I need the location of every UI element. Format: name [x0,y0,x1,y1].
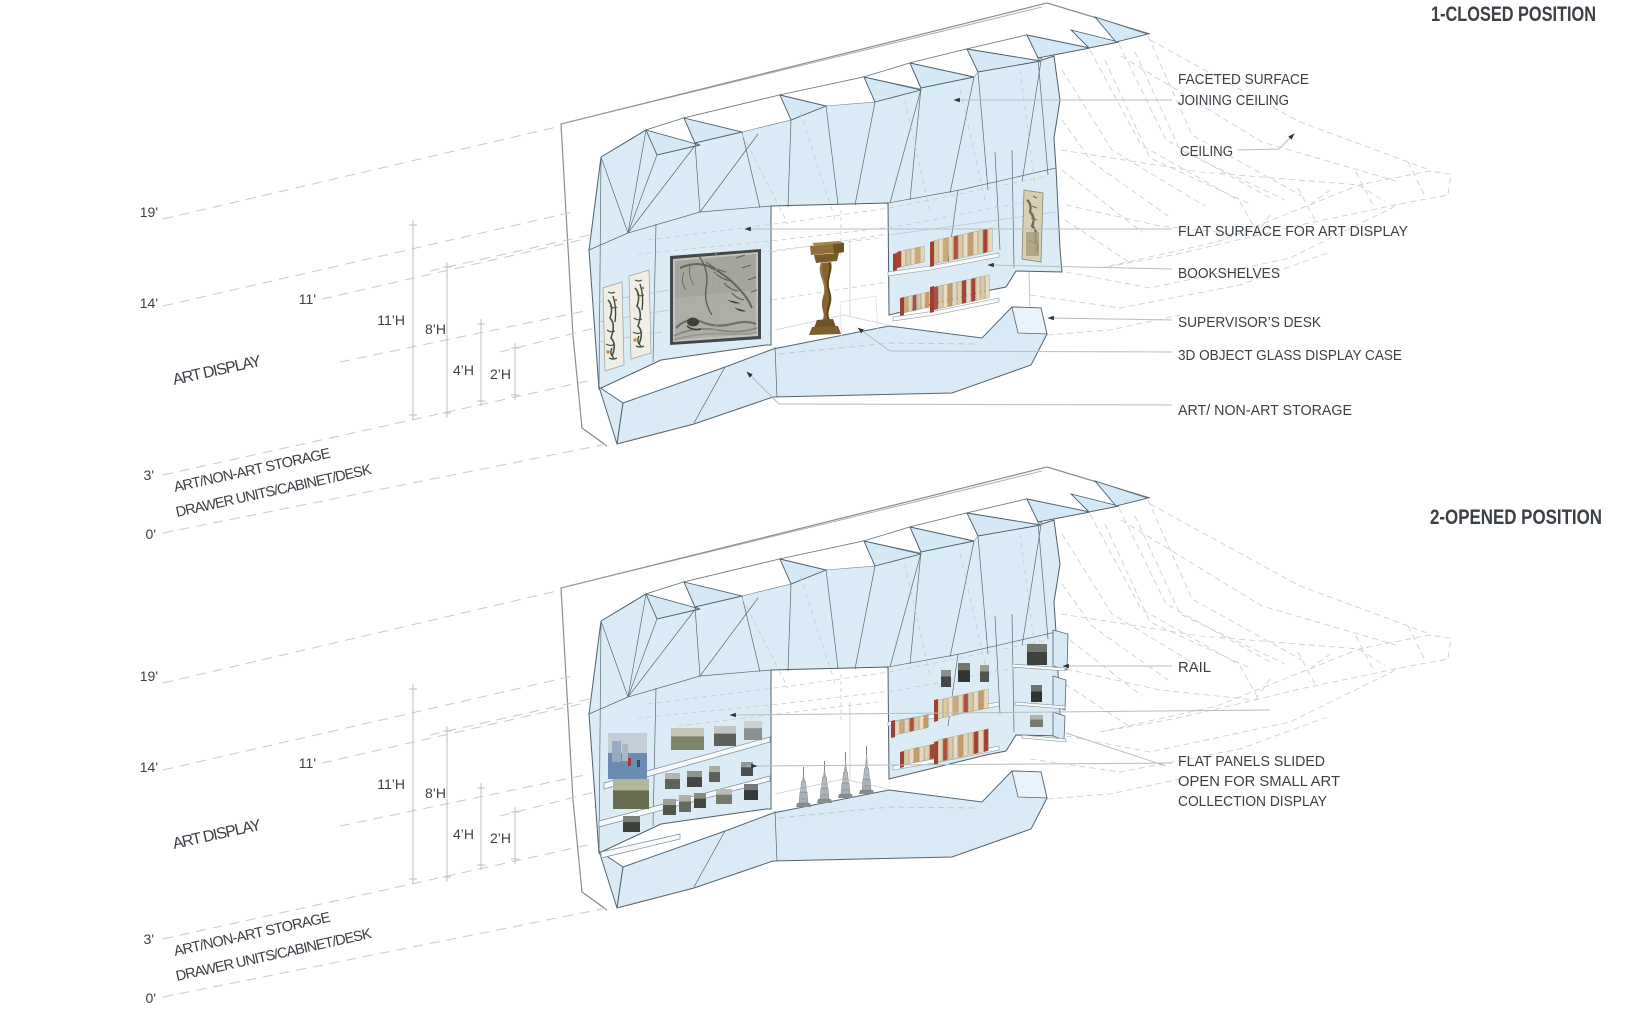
svg-text:SUPERVISOR’S DESK: SUPERVISOR’S DESK [1178,314,1321,331]
svg-text:3D OBJECT GLASS DISPLAY CASE: 3D OBJECT GLASS DISPLAY CASE [1178,347,1402,364]
svg-text:CEILING: CEILING [1180,143,1233,160]
svg-text:FLAT PANELS SLIDED: FLAT PANELS SLIDED [1178,753,1325,770]
svg-text:JOINING CEILING: JOINING CEILING [1178,92,1289,109]
svg-text:OPEN FOR SMALL ART: OPEN FOR SMALL ART [1178,773,1340,790]
svg-text:1-CLOSED POSITION: 1-CLOSED POSITION [1431,3,1596,26]
svg-text:ART/ NON-ART STORAGE: ART/ NON-ART STORAGE [1178,402,1352,419]
svg-text:RAIL: RAIL [1178,659,1211,676]
svg-text:FACETED SURFACE: FACETED SURFACE [1178,71,1309,88]
svg-text:BOOKSHELVES: BOOKSHELVES [1178,265,1280,282]
svg-text:FLAT SURFACE FOR ART DISPLAY: FLAT SURFACE FOR ART DISPLAY [1178,223,1408,240]
svg-text:2-OPENED POSITION: 2-OPENED POSITION [1430,506,1602,529]
svg-text:COLLECTION DISPLAY: COLLECTION DISPLAY [1178,793,1327,810]
